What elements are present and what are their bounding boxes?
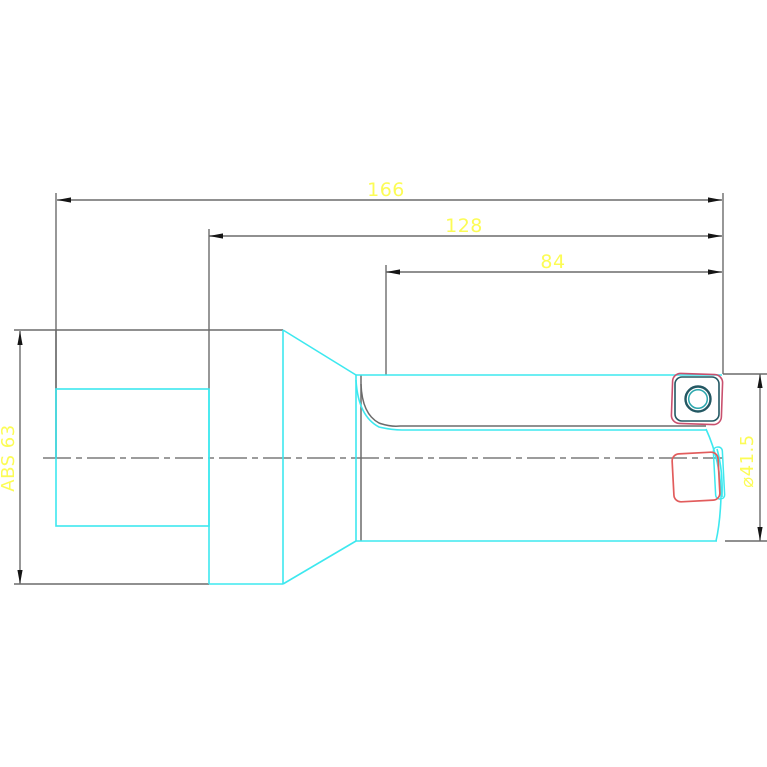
cad-drawing-canvas: 166 128 84 ABS 63 ⌀41.5 xyxy=(0,0,767,767)
arrowhead-diameter-bottom xyxy=(757,527,762,541)
label-body-length: 128 xyxy=(445,215,483,237)
screw-hole-inner-circle xyxy=(689,390,708,409)
arrowhead-166-left xyxy=(57,197,71,202)
arrowhead-128-left xyxy=(209,233,223,238)
arrowhead-84-right xyxy=(708,269,722,274)
arrowhead-166-right xyxy=(708,197,722,202)
insert-top-teal-outline xyxy=(675,377,719,421)
arrowhead-128-right xyxy=(708,233,722,238)
cutter-outline xyxy=(56,330,722,584)
label-overall-length: 166 xyxy=(367,179,405,201)
taper-top-edge xyxy=(283,330,356,375)
insert-front xyxy=(672,447,725,502)
arrowhead-diameter-top xyxy=(757,374,762,388)
dimension-labels: 166 128 84 ABS 63 ⌀41.5 xyxy=(0,179,758,492)
arrowhead-abs63-top xyxy=(17,331,22,345)
holder-outline xyxy=(14,330,706,584)
label-flute-length: 84 xyxy=(540,251,565,273)
flute-arc-gray xyxy=(361,384,706,426)
arrowhead-abs63-bottom xyxy=(17,570,22,584)
label-diameter: ⌀41.5 xyxy=(737,434,758,487)
taper-bottom-edge xyxy=(283,541,356,584)
arrowhead-84-left xyxy=(386,269,400,274)
insert-top xyxy=(671,373,723,425)
label-shank-type: ABS 63 xyxy=(0,424,19,491)
extension-lines xyxy=(56,193,767,541)
flute-arc-cyan xyxy=(356,380,706,430)
insert-top-red-outline xyxy=(671,373,723,425)
insert-front-red-outline xyxy=(672,452,720,502)
drill-technical-drawing: 166 128 84 ABS 63 ⌀41.5 xyxy=(0,0,767,767)
